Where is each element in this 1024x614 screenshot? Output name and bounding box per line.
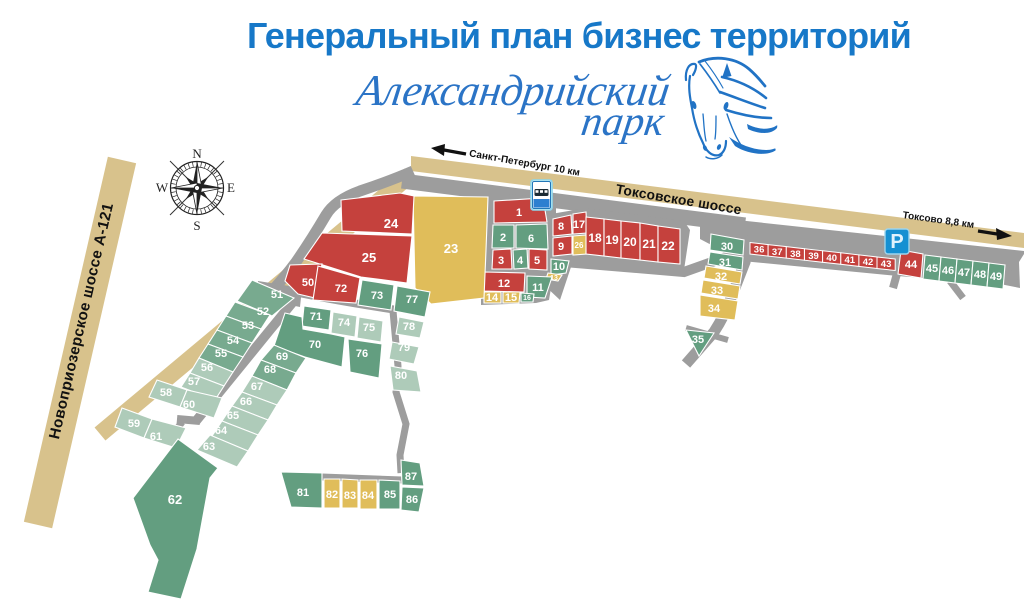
svg-text:72: 72 xyxy=(335,283,347,295)
svg-text:14: 14 xyxy=(486,292,499,304)
svg-text:70: 70 xyxy=(309,339,321,351)
svg-text:3: 3 xyxy=(498,255,504,267)
svg-text:35: 35 xyxy=(692,334,704,346)
svg-text:69: 69 xyxy=(276,351,288,363)
svg-text:42: 42 xyxy=(863,257,874,268)
svg-text:17: 17 xyxy=(573,219,585,231)
svg-text:86: 86 xyxy=(406,494,418,506)
svg-text:76: 76 xyxy=(356,348,368,360)
svg-text:75: 75 xyxy=(363,322,375,334)
svg-text:2: 2 xyxy=(500,232,506,244)
svg-text:24: 24 xyxy=(384,216,399,231)
svg-text:19: 19 xyxy=(605,233,619,247)
svg-text:25: 25 xyxy=(362,250,376,265)
svg-text:83: 83 xyxy=(344,490,356,502)
svg-text:33: 33 xyxy=(711,285,723,297)
svg-text:20: 20 xyxy=(623,235,637,249)
svg-text:9: 9 xyxy=(558,241,564,253)
svg-text:43: 43 xyxy=(881,259,892,270)
svg-text:64: 64 xyxy=(215,425,228,437)
svg-text:37: 37 xyxy=(772,247,783,258)
svg-text:12: 12 xyxy=(498,278,510,290)
svg-text:5: 5 xyxy=(534,255,540,267)
svg-text:82: 82 xyxy=(326,489,338,501)
svg-text:54: 54 xyxy=(227,335,240,347)
svg-text:44: 44 xyxy=(905,259,918,271)
svg-text:18: 18 xyxy=(588,231,602,245)
svg-text:22: 22 xyxy=(661,239,675,253)
svg-text:8: 8 xyxy=(558,221,564,233)
svg-text:60: 60 xyxy=(183,399,195,411)
svg-text:32: 32 xyxy=(715,271,727,283)
svg-text:E: E xyxy=(227,180,235,195)
svg-text:39: 39 xyxy=(808,251,819,262)
svg-text:47: 47 xyxy=(958,267,970,279)
svg-text:49: 49 xyxy=(990,271,1002,283)
svg-text:36: 36 xyxy=(754,245,765,256)
svg-text:67: 67 xyxy=(251,381,263,393)
svg-text:Генеральный план бизнес террит: Генеральный план бизнес территорий xyxy=(247,15,911,56)
svg-text:15: 15 xyxy=(505,292,517,304)
svg-text:61: 61 xyxy=(150,431,162,443)
svg-text:73: 73 xyxy=(371,290,383,302)
svg-text:84: 84 xyxy=(362,490,375,502)
svg-text:51: 51 xyxy=(271,289,283,301)
svg-text:57: 57 xyxy=(188,376,200,388)
svg-text:N: N xyxy=(192,146,202,161)
svg-text:55: 55 xyxy=(215,348,227,360)
svg-text:63: 63 xyxy=(203,441,215,453)
svg-text:56: 56 xyxy=(201,362,213,374)
svg-text:S: S xyxy=(193,218,200,233)
svg-text:парк: парк xyxy=(578,98,667,145)
svg-text:66: 66 xyxy=(240,396,252,408)
svg-text:31: 31 xyxy=(719,257,731,269)
svg-text:21: 21 xyxy=(642,237,656,251)
svg-text:68: 68 xyxy=(264,364,276,376)
svg-text:62: 62 xyxy=(168,492,182,507)
svg-text:6: 6 xyxy=(528,233,534,245)
svg-text:10: 10 xyxy=(553,261,565,273)
svg-text:74: 74 xyxy=(338,317,351,329)
svg-text:85: 85 xyxy=(384,489,396,501)
svg-text:59: 59 xyxy=(128,418,140,430)
svg-text:50: 50 xyxy=(302,277,314,289)
svg-text:38: 38 xyxy=(790,249,801,260)
svg-text:48: 48 xyxy=(974,269,986,281)
svg-text:30: 30 xyxy=(721,241,733,253)
svg-text:W: W xyxy=(156,180,169,195)
svg-text:11: 11 xyxy=(532,282,544,294)
svg-text:71: 71 xyxy=(310,311,322,323)
svg-text:23: 23 xyxy=(444,241,458,256)
svg-text:16: 16 xyxy=(523,295,531,302)
svg-text:80: 80 xyxy=(395,370,407,382)
svg-text:52: 52 xyxy=(257,306,269,318)
svg-text:P: P xyxy=(890,231,903,253)
svg-text:40: 40 xyxy=(826,253,837,264)
svg-text:77: 77 xyxy=(406,294,418,306)
svg-text:79: 79 xyxy=(398,342,410,354)
svg-text:45: 45 xyxy=(926,263,938,275)
svg-text:26: 26 xyxy=(575,241,584,250)
svg-text:58: 58 xyxy=(160,387,172,399)
svg-text:41: 41 xyxy=(845,255,856,266)
svg-text:46: 46 xyxy=(942,265,954,277)
svg-text:4: 4 xyxy=(517,255,524,267)
svg-text:1: 1 xyxy=(516,207,522,219)
svg-text:53: 53 xyxy=(242,320,254,332)
svg-text:65: 65 xyxy=(227,410,239,422)
svg-text:87: 87 xyxy=(405,471,417,483)
svg-text:81: 81 xyxy=(297,487,309,499)
svg-text:78: 78 xyxy=(403,321,415,333)
svg-text:34: 34 xyxy=(708,303,721,315)
